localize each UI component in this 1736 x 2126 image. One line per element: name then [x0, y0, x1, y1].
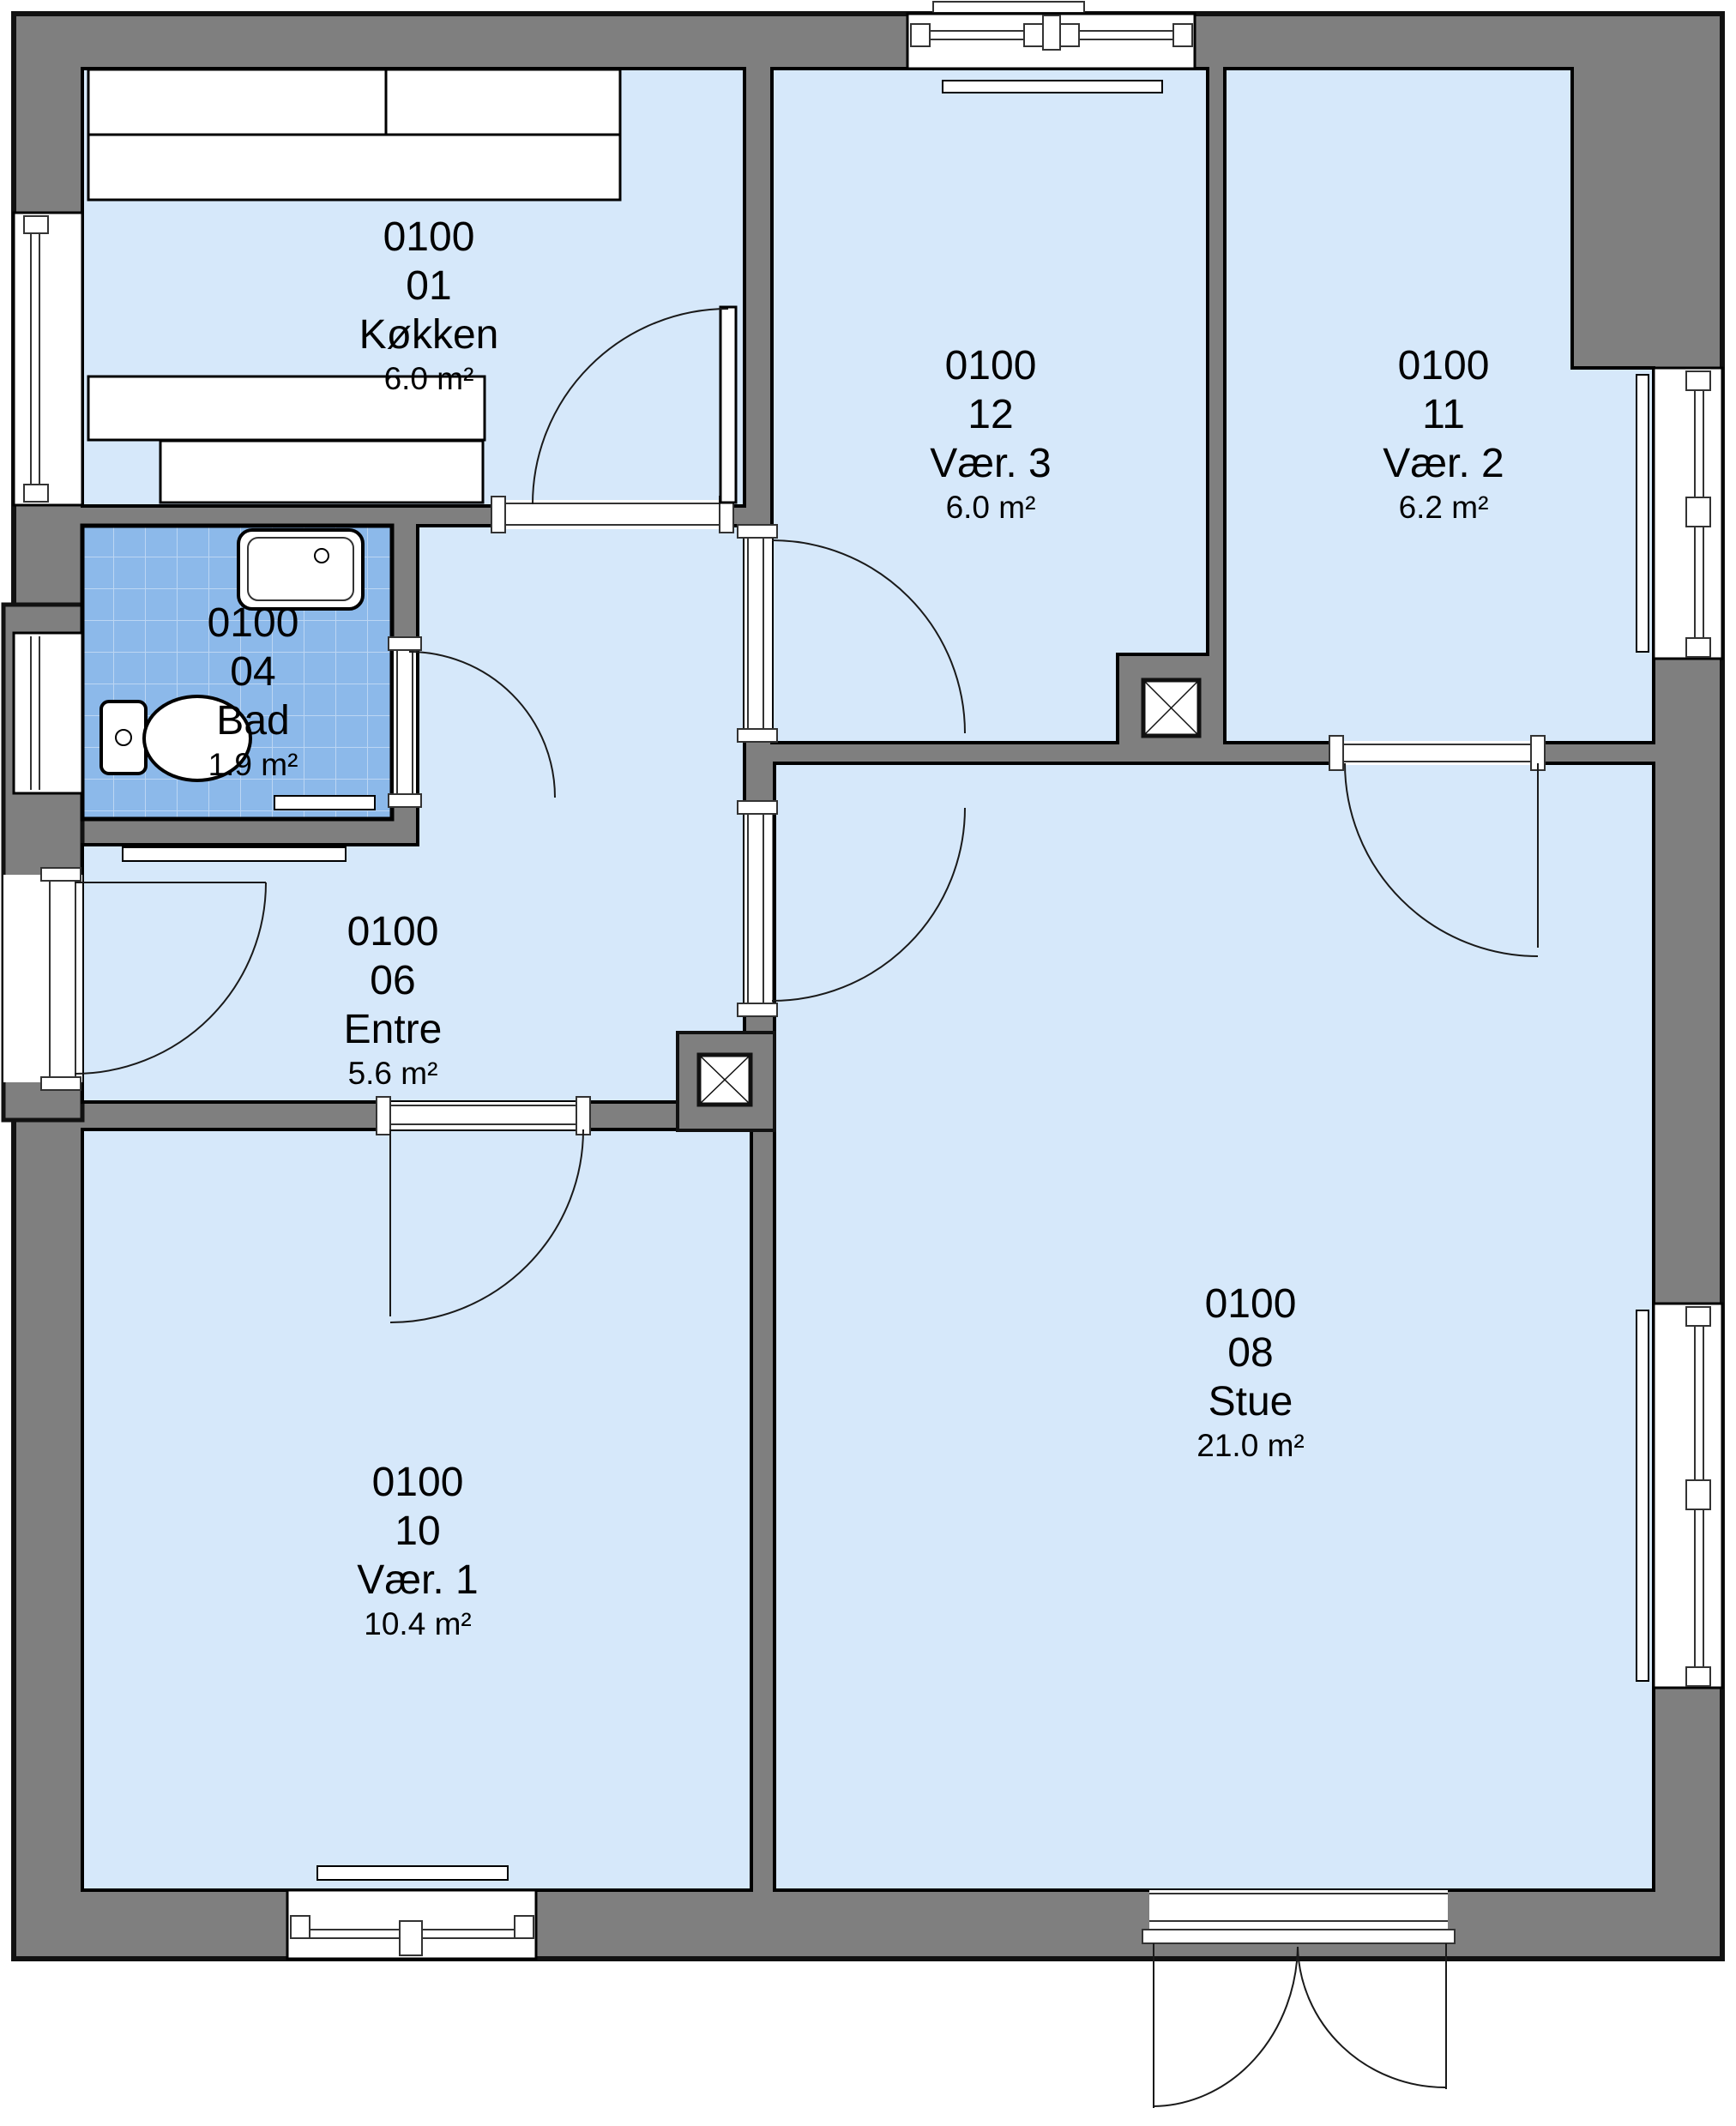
room-area: 6.0 m² [359, 359, 499, 399]
duct-shaft-icon [1143, 680, 1199, 736]
room-area: 6.0 m² [930, 488, 1051, 527]
room-code: 0100 [359, 213, 499, 262]
room-name: Køkken [359, 310, 499, 359]
door-leaf-koekken [720, 307, 736, 503]
duct-shaft2-block [678, 1033, 775, 1130]
room-label-stue: 0100 08 Stue 21.0 m² [1197, 1280, 1304, 1466]
room-code: 0100 [357, 1458, 478, 1507]
room-area: 1.9 m² [208, 745, 299, 785]
room-number: 06 [344, 956, 443, 1005]
door-swing-entrance-left [1154, 1947, 1298, 2106]
room-label-vaer2: 0100 11 Vær. 2 6.2 m² [1383, 341, 1504, 527]
room-code: 0100 [208, 599, 299, 647]
floorplan-page: { "floorplan": { "type": "architectural-… [0, 0, 1736, 2126]
floorplan-drawing [0, 0, 1736, 2126]
room-area: 5.6 m² [344, 1054, 443, 1093]
room-name: Stue [1197, 1377, 1304, 1426]
room-label-vaer1: 0100 10 Vær. 1 10.4 m² [357, 1458, 478, 1644]
room-number: 04 [208, 647, 299, 696]
room-name: Vær. 1 [357, 1556, 478, 1605]
room-label-vaer3: 0100 12 Vær. 3 6.0 m² [930, 341, 1051, 527]
toilet-flush-button [116, 730, 131, 745]
room-code: 0100 [344, 907, 443, 956]
room-code: 0100 [930, 341, 1051, 390]
room-area: 6.2 m² [1383, 488, 1504, 527]
room-name: Vær. 3 [930, 439, 1051, 488]
room-code: 0100 [1197, 1280, 1304, 1328]
windowsill-stue [1637, 1310, 1649, 1681]
windowsill-vaer1 [317, 1866, 508, 1880]
room-number: 10 [357, 1507, 478, 1556]
door-swing-entrance-right [1298, 1947, 1446, 2087]
windowsill-vaer3 [943, 81, 1162, 93]
room-code: 0100 [1383, 341, 1504, 390]
sill-entre [123, 847, 346, 861]
room-label-bad: 0100 04 Bad 1.9 m² [208, 599, 299, 785]
windowsill-vaer2 [1637, 375, 1649, 652]
room-label-entre: 0100 06 Entre 5.6 m² [344, 907, 443, 1093]
room-label-koekken: 0100 01 Køkken 6.0 m² [359, 213, 499, 399]
room-name: Bad [208, 696, 299, 745]
room-area: 10.4 m² [357, 1605, 478, 1644]
sink-tap-icon [315, 549, 329, 563]
window-vaer1-bottom [287, 1866, 536, 1959]
window-vaer2-right [1637, 368, 1722, 659]
room-number: 08 [1197, 1328, 1304, 1377]
window-stue-right [1637, 1304, 1722, 1688]
door-entrance-double [1142, 1890, 1455, 2108]
room-number: 11 [1383, 390, 1504, 439]
window-koekken-left [14, 213, 82, 505]
room-number: 12 [930, 390, 1051, 439]
room-name: Entre [344, 1005, 443, 1054]
room-name: Vær. 2 [1383, 439, 1504, 488]
sink-icon [238, 530, 363, 609]
window-bad-left [14, 633, 82, 793]
room-area: 21.0 m² [1197, 1426, 1304, 1466]
room-number: 01 [359, 262, 499, 310]
sill-bad [274, 796, 375, 810]
